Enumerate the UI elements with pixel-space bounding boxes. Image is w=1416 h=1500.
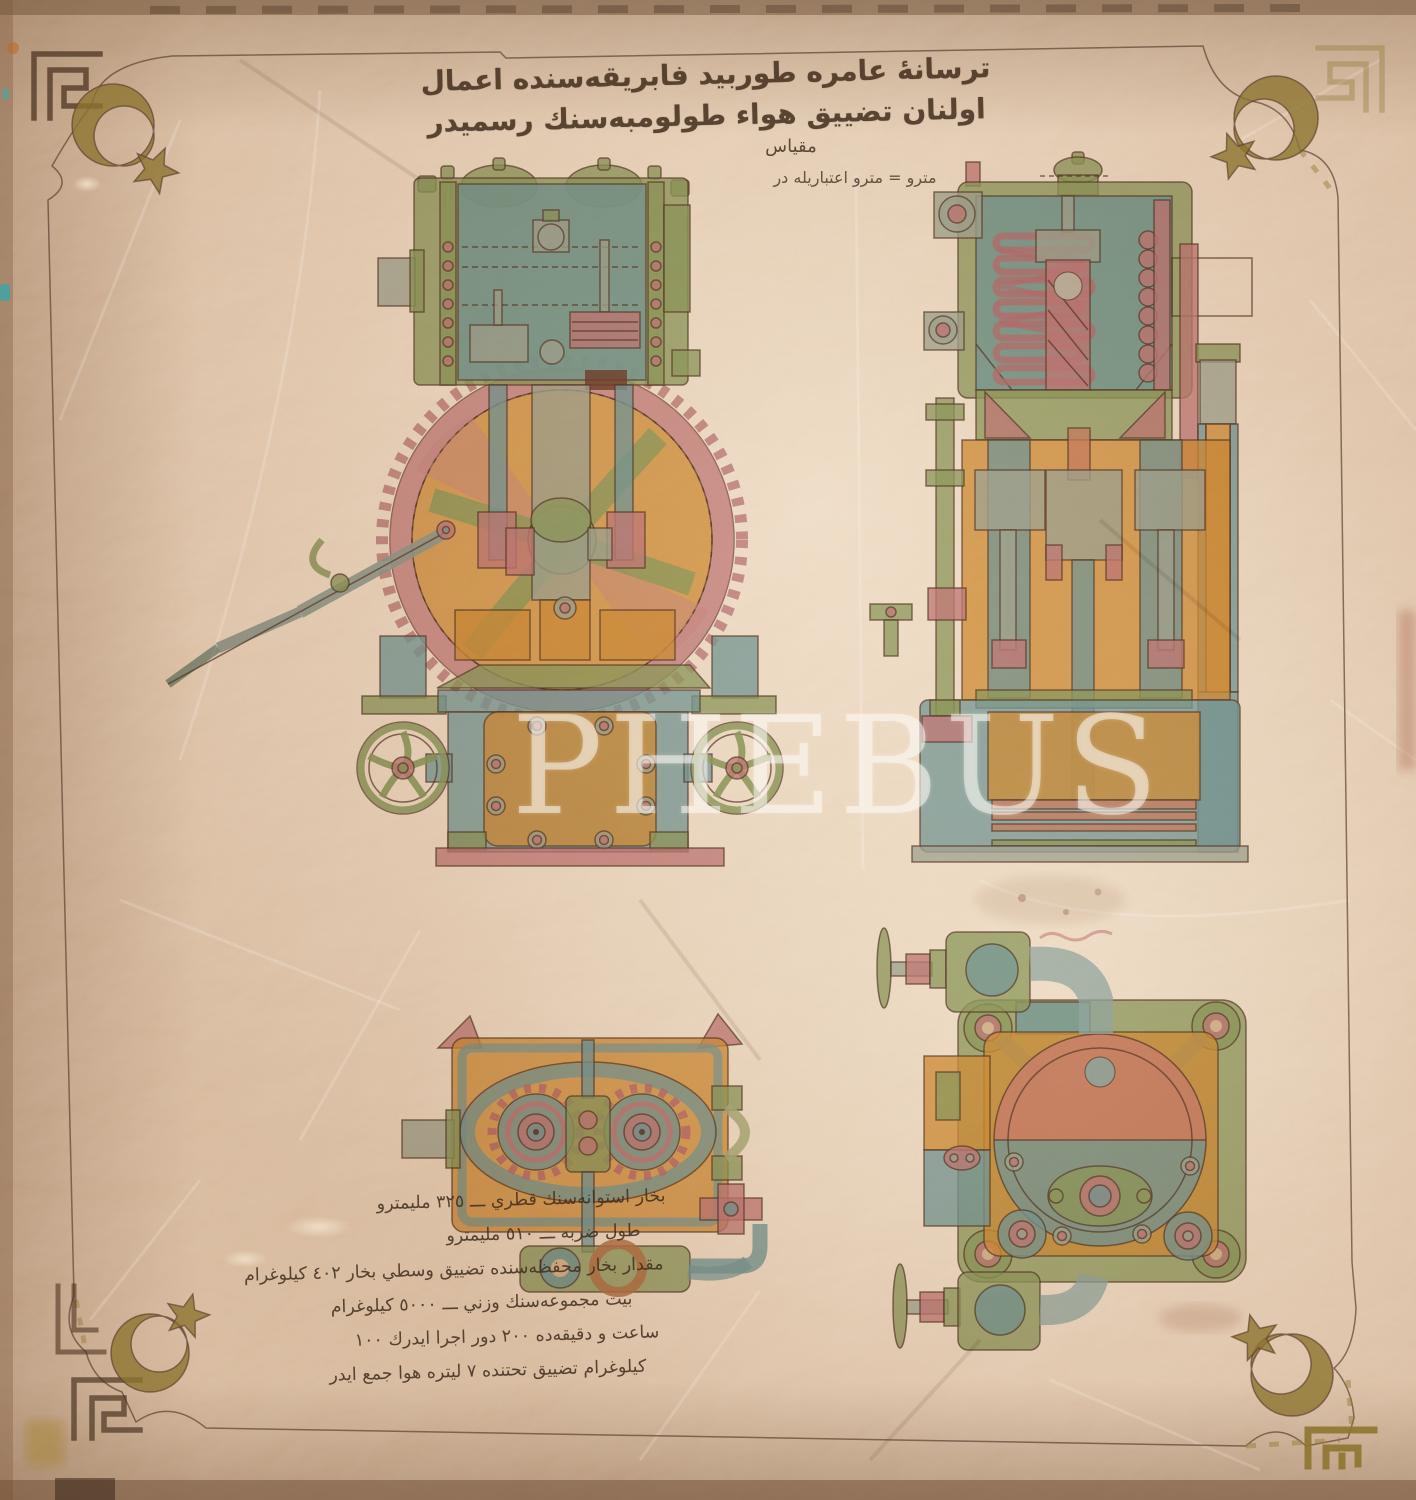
center-block — [566, 1096, 610, 1172]
ottoman-blueprint-photo: ترسانهٔ عامره طوربيد فابريقه‌سنده اعمال … — [0, 0, 1416, 1500]
paper-smudge — [286, 1216, 352, 1238]
cylinder-housing — [378, 158, 700, 390]
title-calligraphy: ترسانهٔ عامره طوربيد فابريقه‌سنده اعمال … — [407, 47, 1005, 144]
paper-smudge — [72, 176, 102, 192]
paper-smudge — [222, 1250, 268, 1268]
scale-note: مترو = مترو اعتباريله در — [690, 168, 1020, 187]
oval-flange — [1048, 1166, 1152, 1226]
scale-heading: مقياس — [736, 136, 846, 157]
side-chamber — [924, 1056, 990, 1226]
top-stem — [582, 1040, 594, 1098]
specifications-block: بخار استوانه‌سنك قطري ـــ ٣٢٥ مليمترو طو… — [169, 1179, 675, 1397]
crosshead-mechanism — [478, 385, 645, 600]
phebus-watermark: PHEBUS — [498, 688, 1178, 846]
